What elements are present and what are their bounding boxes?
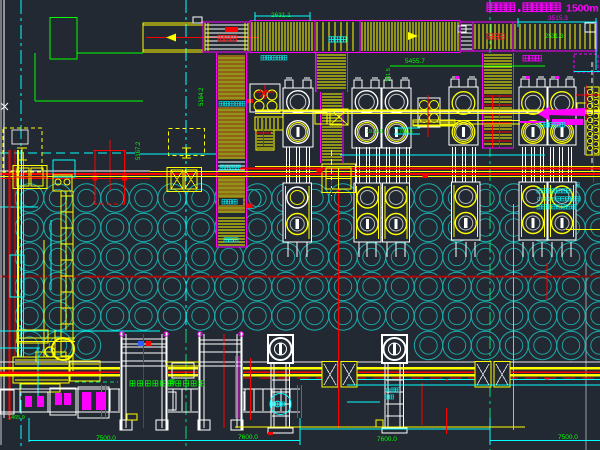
svg-text:5167.2: 5167.2: [136, 141, 142, 160]
svg-text:7600.0: 7600.0: [377, 436, 397, 443]
svg-text:2631.1: 2631.1: [271, 12, 291, 19]
svg-text:1918.9: 1918.9: [366, 129, 383, 135]
svg-text:3515.3: 3515.3: [548, 15, 568, 22]
svg-text:1#: 1#: [385, 388, 391, 394]
svg-text:1500m: 1500m: [566, 3, 599, 15]
svg-text:COR2.5,: COR2.5,: [537, 197, 556, 203]
svg-text:7600.0: 7600.0: [238, 434, 258, 441]
svg-text:2531.3: 2531.3: [545, 34, 564, 40]
svg-text:1465.9: 1465.9: [8, 415, 25, 421]
svg-text:5455.7: 5455.7: [405, 58, 425, 65]
svg-text:5164.2: 5164.2: [199, 87, 205, 106]
svg-text:761.5: 761.5: [386, 68, 392, 82]
svg-text:7500.0: 7500.0: [558, 434, 578, 441]
svg-text:7500.0: 7500.0: [96, 435, 116, 442]
